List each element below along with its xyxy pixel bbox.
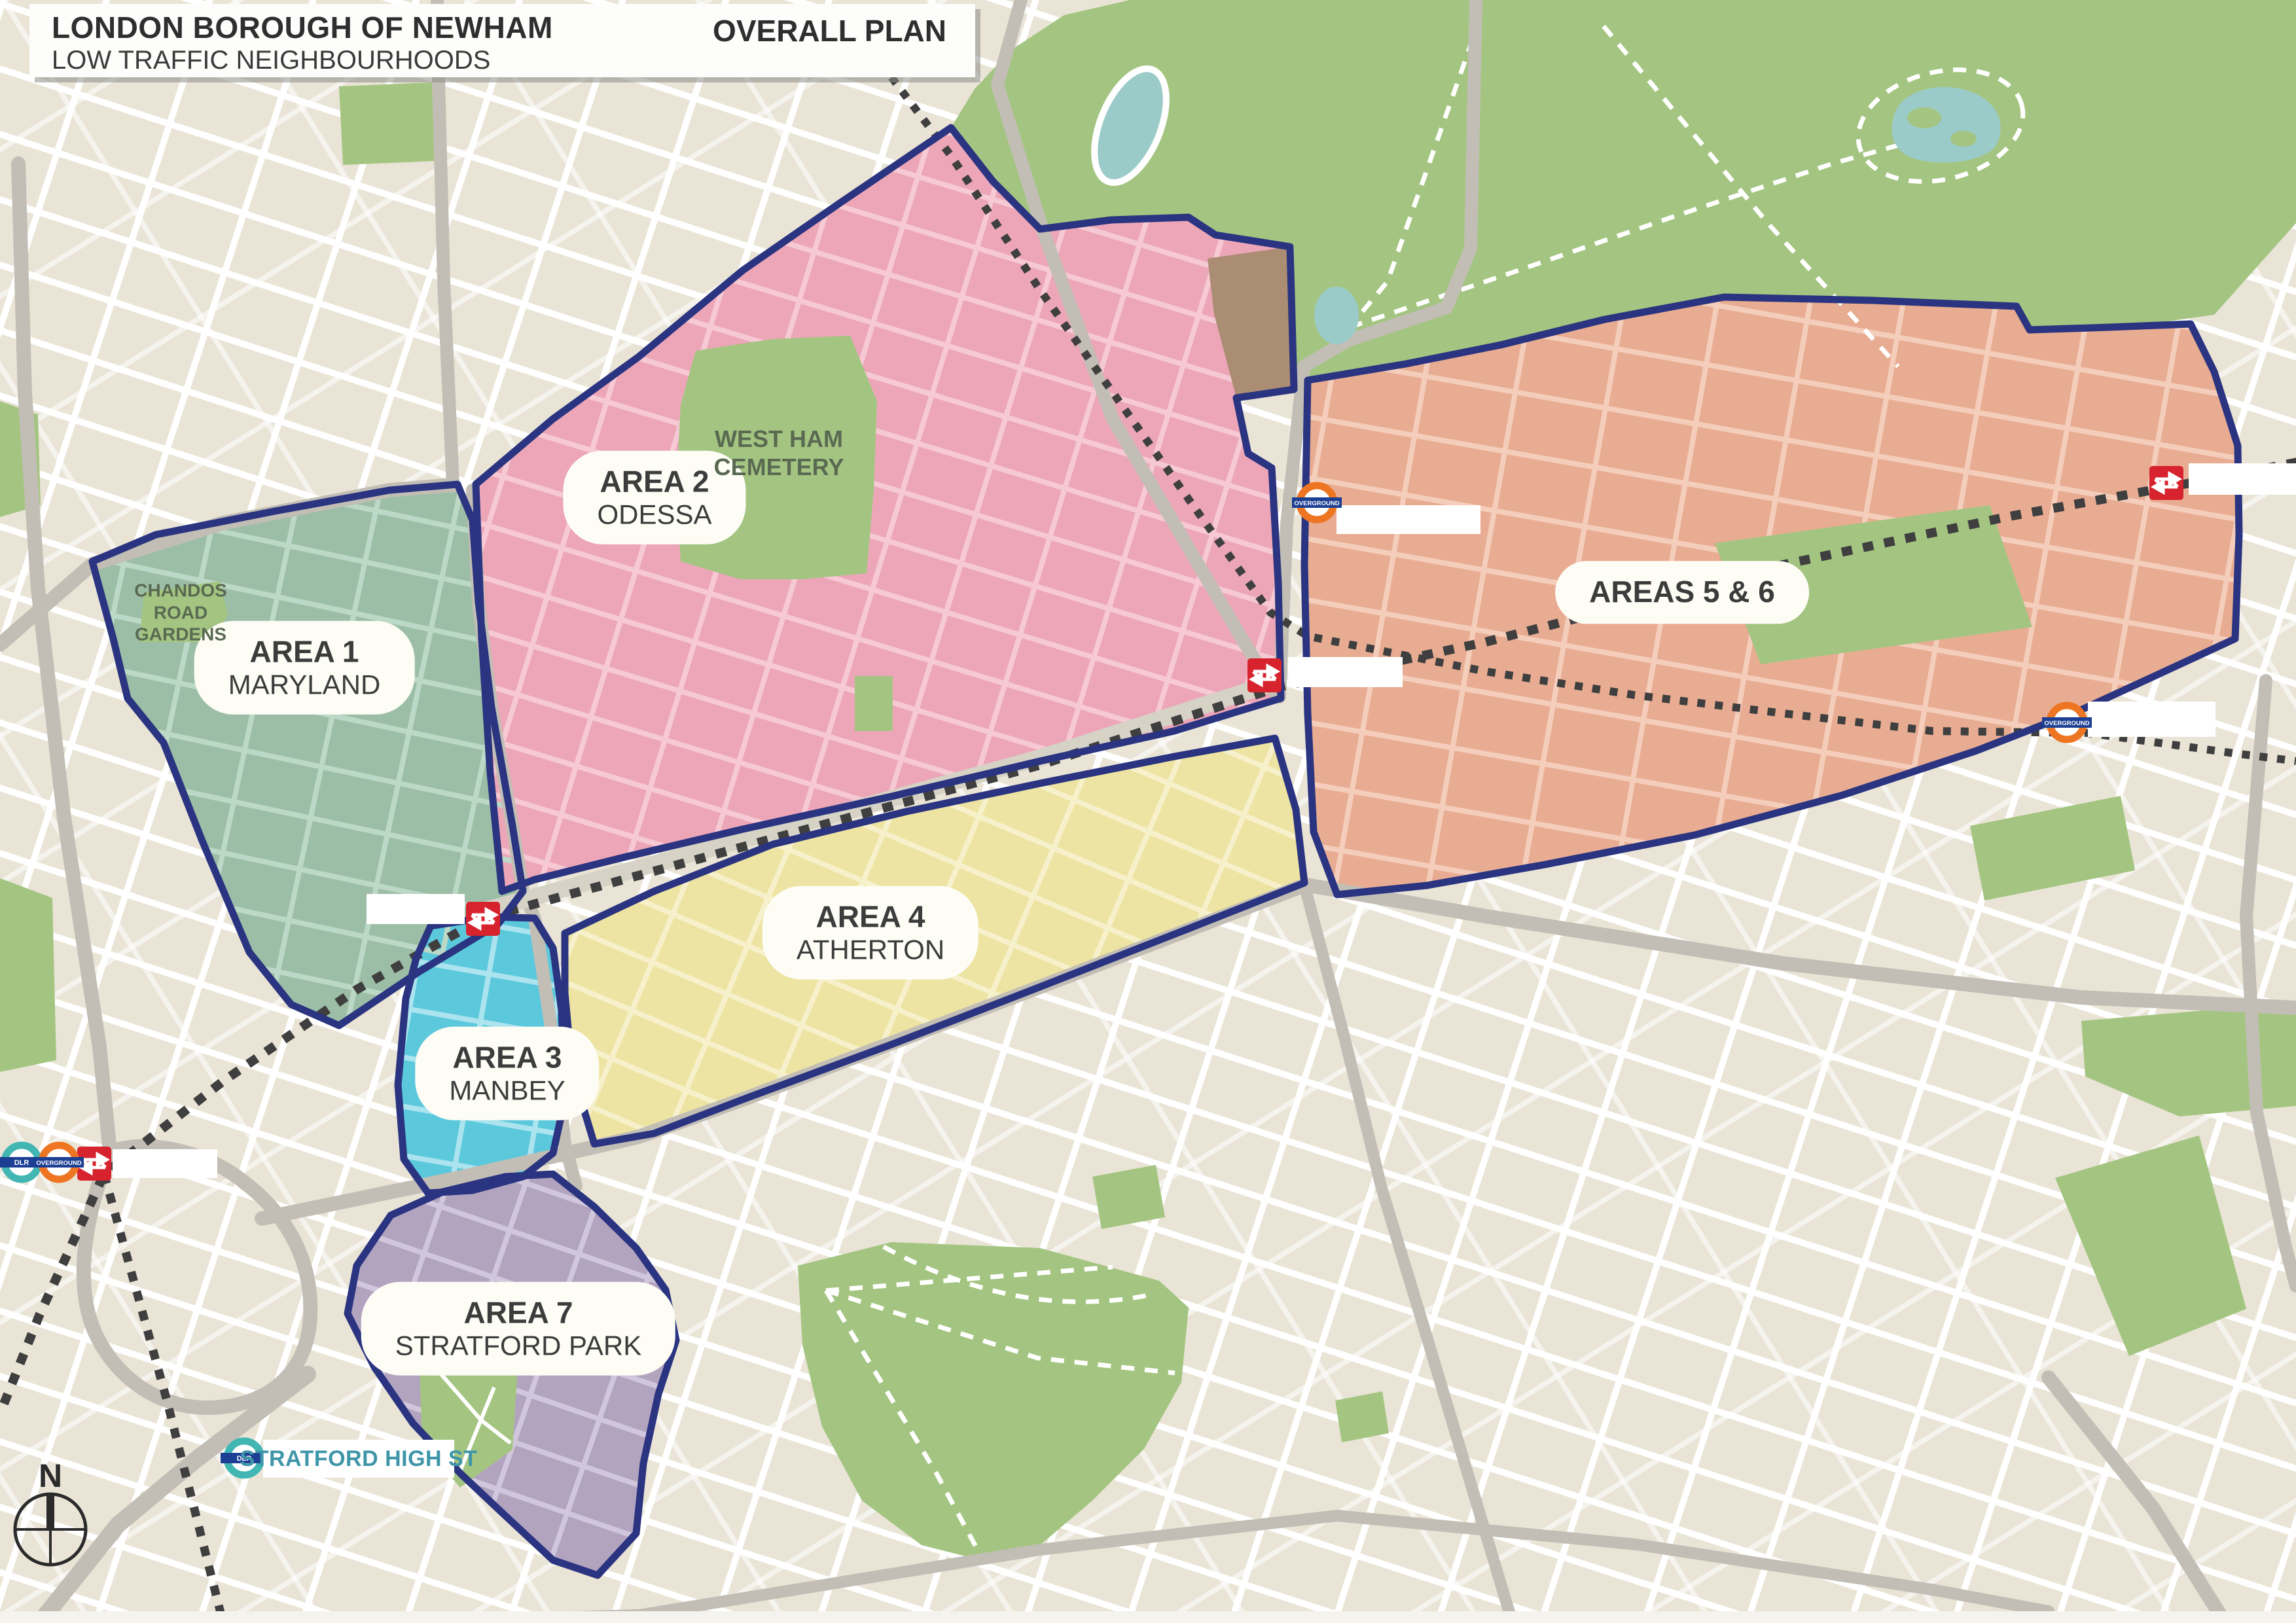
area-subname: ODESSA — [597, 499, 711, 529]
maryland-national-rail-icon — [466, 902, 500, 936]
areas-5-6-label-pill: AREAS 5 & 6 — [1555, 561, 1809, 624]
svg-text:OVERGROUND: OVERGROUND — [1294, 500, 1339, 507]
stratford-station-label-box — [113, 1149, 217, 1178]
area-subname: STRATFORD PARK — [395, 1330, 641, 1361]
manor-park-national-rail-icon — [2149, 466, 2183, 500]
area-name: AREAS 5 & 6 — [1589, 575, 1775, 609]
area-name: AREA 3 — [449, 1041, 565, 1075]
stratford-high-st-label-box: STRATFORD HIGH ST — [263, 1440, 454, 1478]
plan-label: OVERALL PLAN — [713, 13, 946, 48]
map-bottom-edge — [0, 1611, 2296, 1623]
maryland-station-label-box — [367, 894, 465, 924]
forest-gate-national-rail-icon — [1247, 658, 1282, 692]
small-green-area2 — [855, 676, 893, 731]
area-subname: ATHERTON — [797, 934, 944, 965]
ltn-overall-plan-map: OVERGROUND OVERGROUND DLR OVERGROUND DLR — [0, 0, 2296, 1623]
green-left-strip-2 — [0, 878, 56, 1072]
svg-text:DLR: DLR — [14, 1159, 29, 1167]
area-subname: MARYLAND — [228, 669, 381, 700]
area-name: AREA 4 — [797, 901, 944, 935]
west-ham-cemetery-label: WEST HAM CEMETERY — [681, 425, 877, 481]
stratford-high-st-label: STRATFORD HIGH ST — [240, 1446, 478, 1472]
map-canvas: OVERGROUND OVERGROUND DLR OVERGROUND DLR — [0, 0, 2296, 1623]
woodgrange-park-station-label-box — [2088, 702, 2215, 737]
area-subname: MANBEY — [449, 1075, 565, 1105]
wanstead-park-station-label-box — [1336, 505, 1480, 534]
compass-north-label: N — [39, 1457, 62, 1494]
manor-park-station-label-box — [2189, 463, 2296, 495]
green-small-low — [1335, 1391, 1389, 1442]
area-name: AREA 7 — [395, 1296, 641, 1330]
lake-island-1 — [1907, 107, 1941, 128]
title-box: LONDON BOROUGH OF NEWHAM LOW TRAFFIC NEI… — [29, 4, 975, 77]
forest-gate-station-label-box — [1288, 657, 1403, 687]
svg-text:OVERGROUND: OVERGROUND — [2044, 720, 2089, 727]
lake-island-2 — [1950, 131, 1977, 147]
area-4-label-pill: AREA 4 ATHERTON — [762, 886, 978, 980]
map-subtitle: LOW TRAFFIC NEIGHBOURHOODS — [52, 45, 953, 75]
area-7-label-pill: AREA 7 STRATFORD PARK — [361, 1282, 675, 1376]
green-top-left — [339, 82, 435, 165]
chandos-road-gardens-label: CHANDOS ROAD GARDENS — [109, 580, 253, 646]
pond-2 — [1314, 287, 1359, 344]
area-3-label-pill: AREA 3 MANBEY — [415, 1027, 599, 1120]
svg-text:OVERGROUND: OVERGROUND — [36, 1160, 81, 1167]
